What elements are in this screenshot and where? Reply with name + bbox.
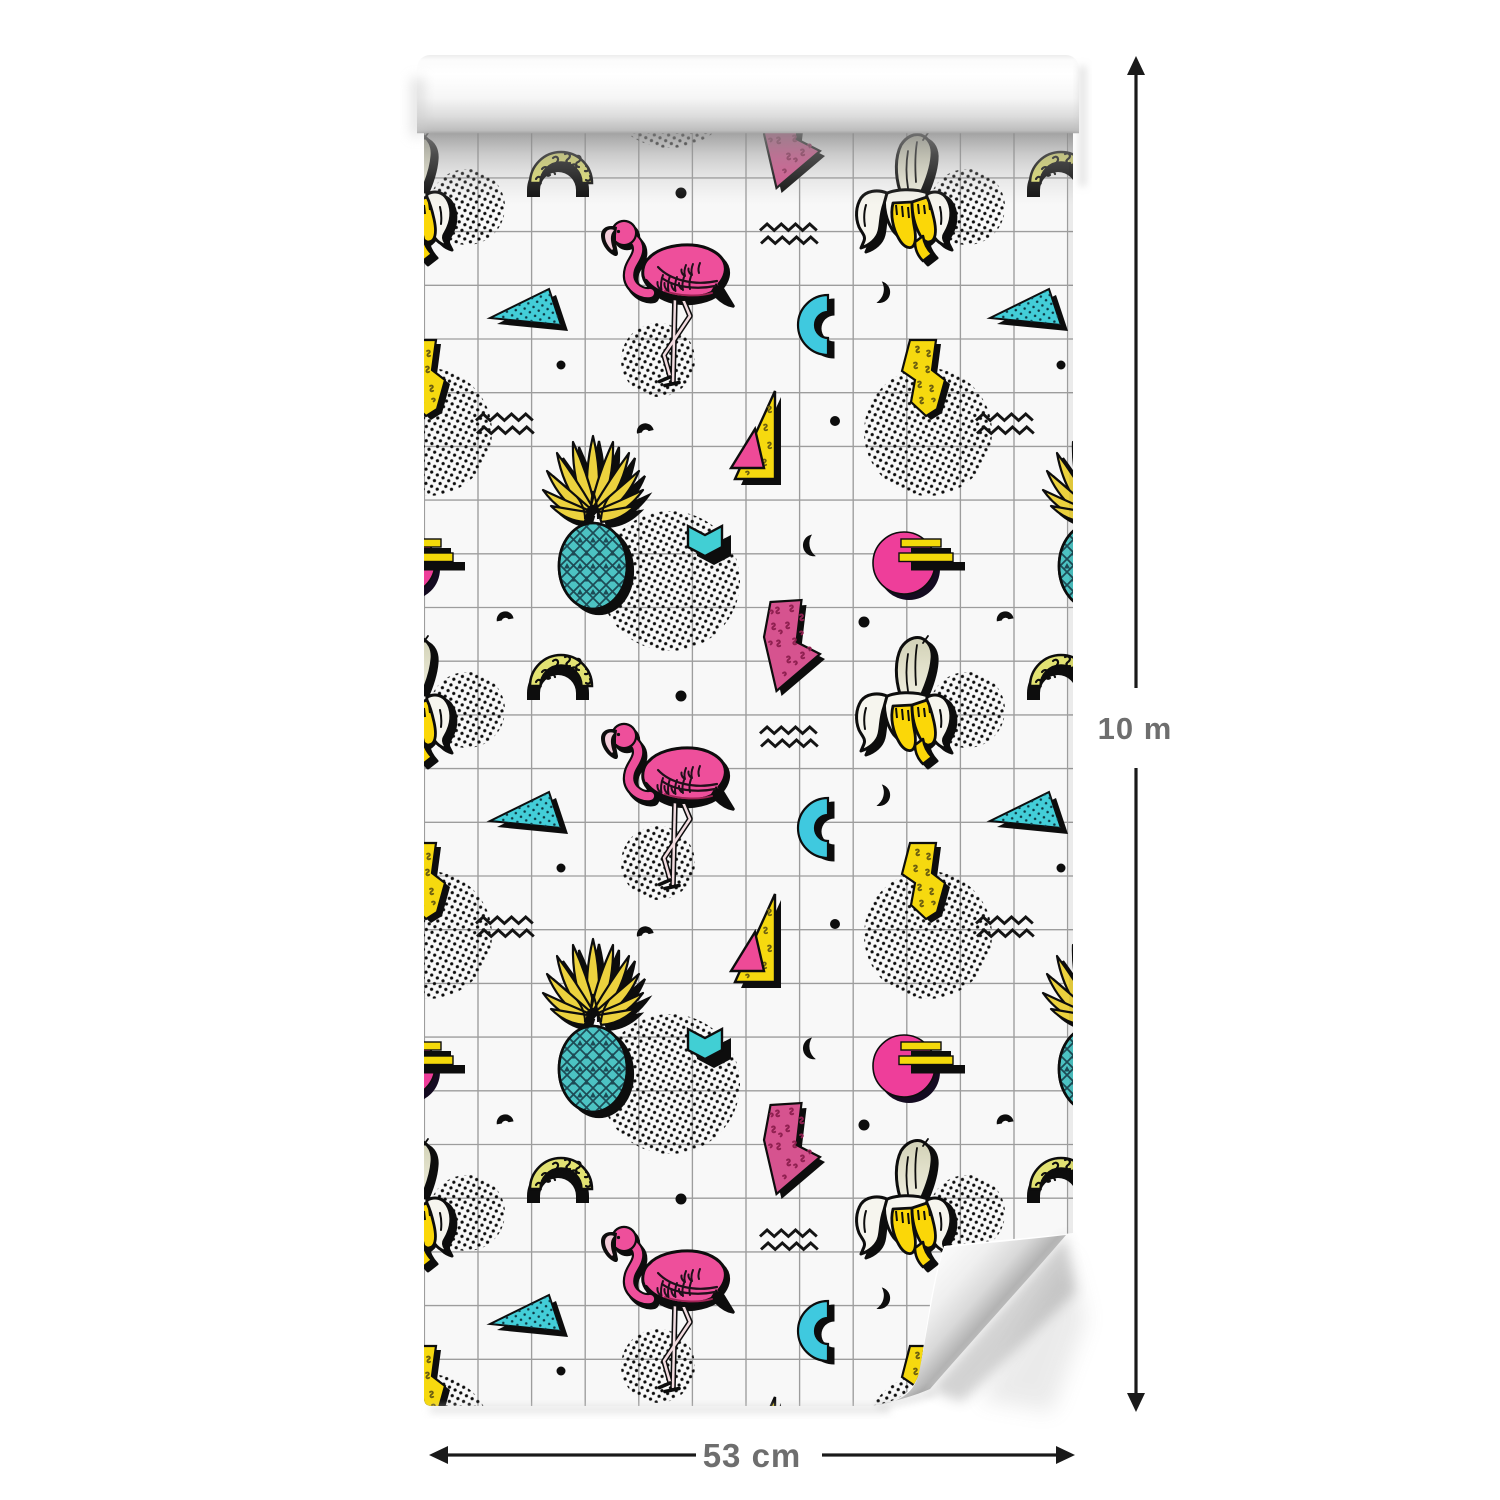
svg-text:53 cm: 53 cm <box>703 1437 802 1474</box>
svg-text:10 m: 10 m <box>1098 711 1173 746</box>
